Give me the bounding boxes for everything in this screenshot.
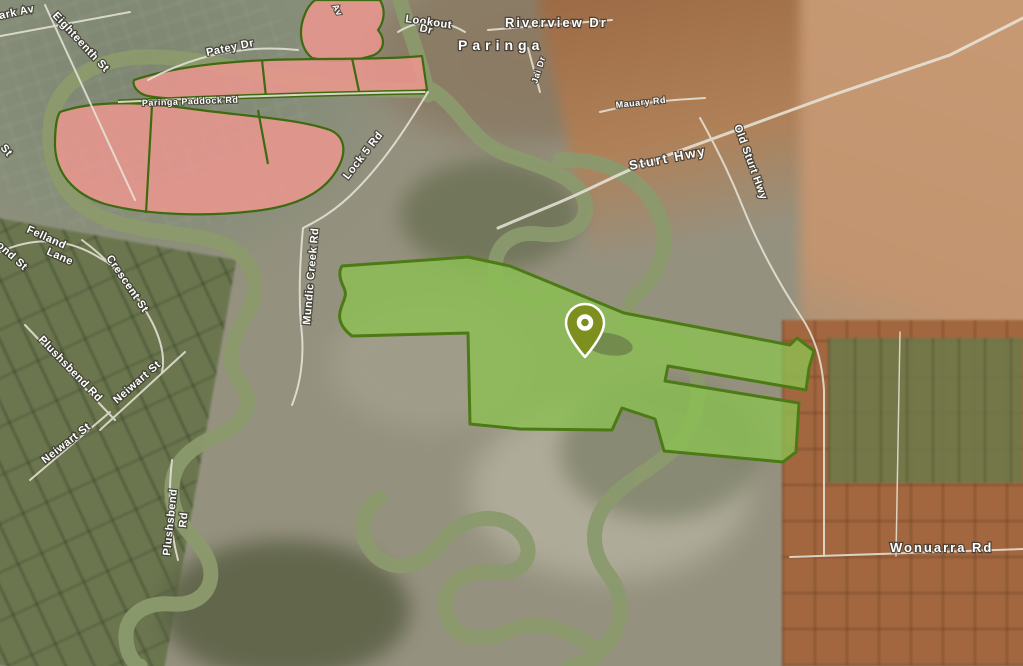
- road-farm-track-east: [896, 332, 900, 556]
- label-lock5-rd: Lock 5 Rd: [341, 129, 386, 181]
- label-sturt-hwy: Sturt Hwy: [628, 143, 708, 173]
- green-parcel[interactable]: [340, 257, 814, 462]
- satellite-map-canvas[interactable]: Renmark Av Eighteenth St Av Patey Dr Par…: [0, 0, 1023, 666]
- label-paringa-paddock-rd: Paringa Paddock Rd: [142, 95, 239, 108]
- label-renmark-av: Renmark Av: [0, 3, 36, 29]
- label-patey-dr: Patey Dr: [205, 37, 255, 59]
- label-eighteenth-st: Eighteenth St: [50, 10, 112, 75]
- label-mauary-rd: Mauary Rd: [615, 95, 666, 110]
- label-crescent-st: Crescent St: [104, 253, 151, 315]
- label-neiwart-st-2: Neiwart St: [39, 421, 93, 467]
- label-st-fragment: St: [0, 142, 15, 159]
- label-paringa-town: Paringa: [458, 37, 544, 53]
- road-neiwart-1: [100, 352, 185, 430]
- label-riverview-dr: Riverview Dr: [505, 15, 608, 30]
- pink-parcels: [55, 0, 427, 214]
- label-felland: Felland: [25, 224, 68, 252]
- river-south-loops: [363, 498, 600, 652]
- label-mundic-creek-rd: Mundic Creek Rd: [301, 227, 321, 325]
- label-plushsbend-rd: Plushsbend Rd: [36, 334, 105, 405]
- label-wonuarra-rd: Wonuarra Rd: [890, 540, 993, 555]
- label-lookout-dr: Dr: [418, 22, 434, 37]
- road-crescent-st: [82, 240, 163, 372]
- label-neiwart-st-1: Neiwart St: [111, 359, 163, 407]
- map-overlay: Renmark Av Eighteenth St Av Patey Dr Par…: [0, 0, 1023, 666]
- label-old-sturt-hwy: Old Sturt Hwy: [731, 123, 770, 202]
- label-plushsbend-south-rd: Rd: [177, 511, 191, 528]
